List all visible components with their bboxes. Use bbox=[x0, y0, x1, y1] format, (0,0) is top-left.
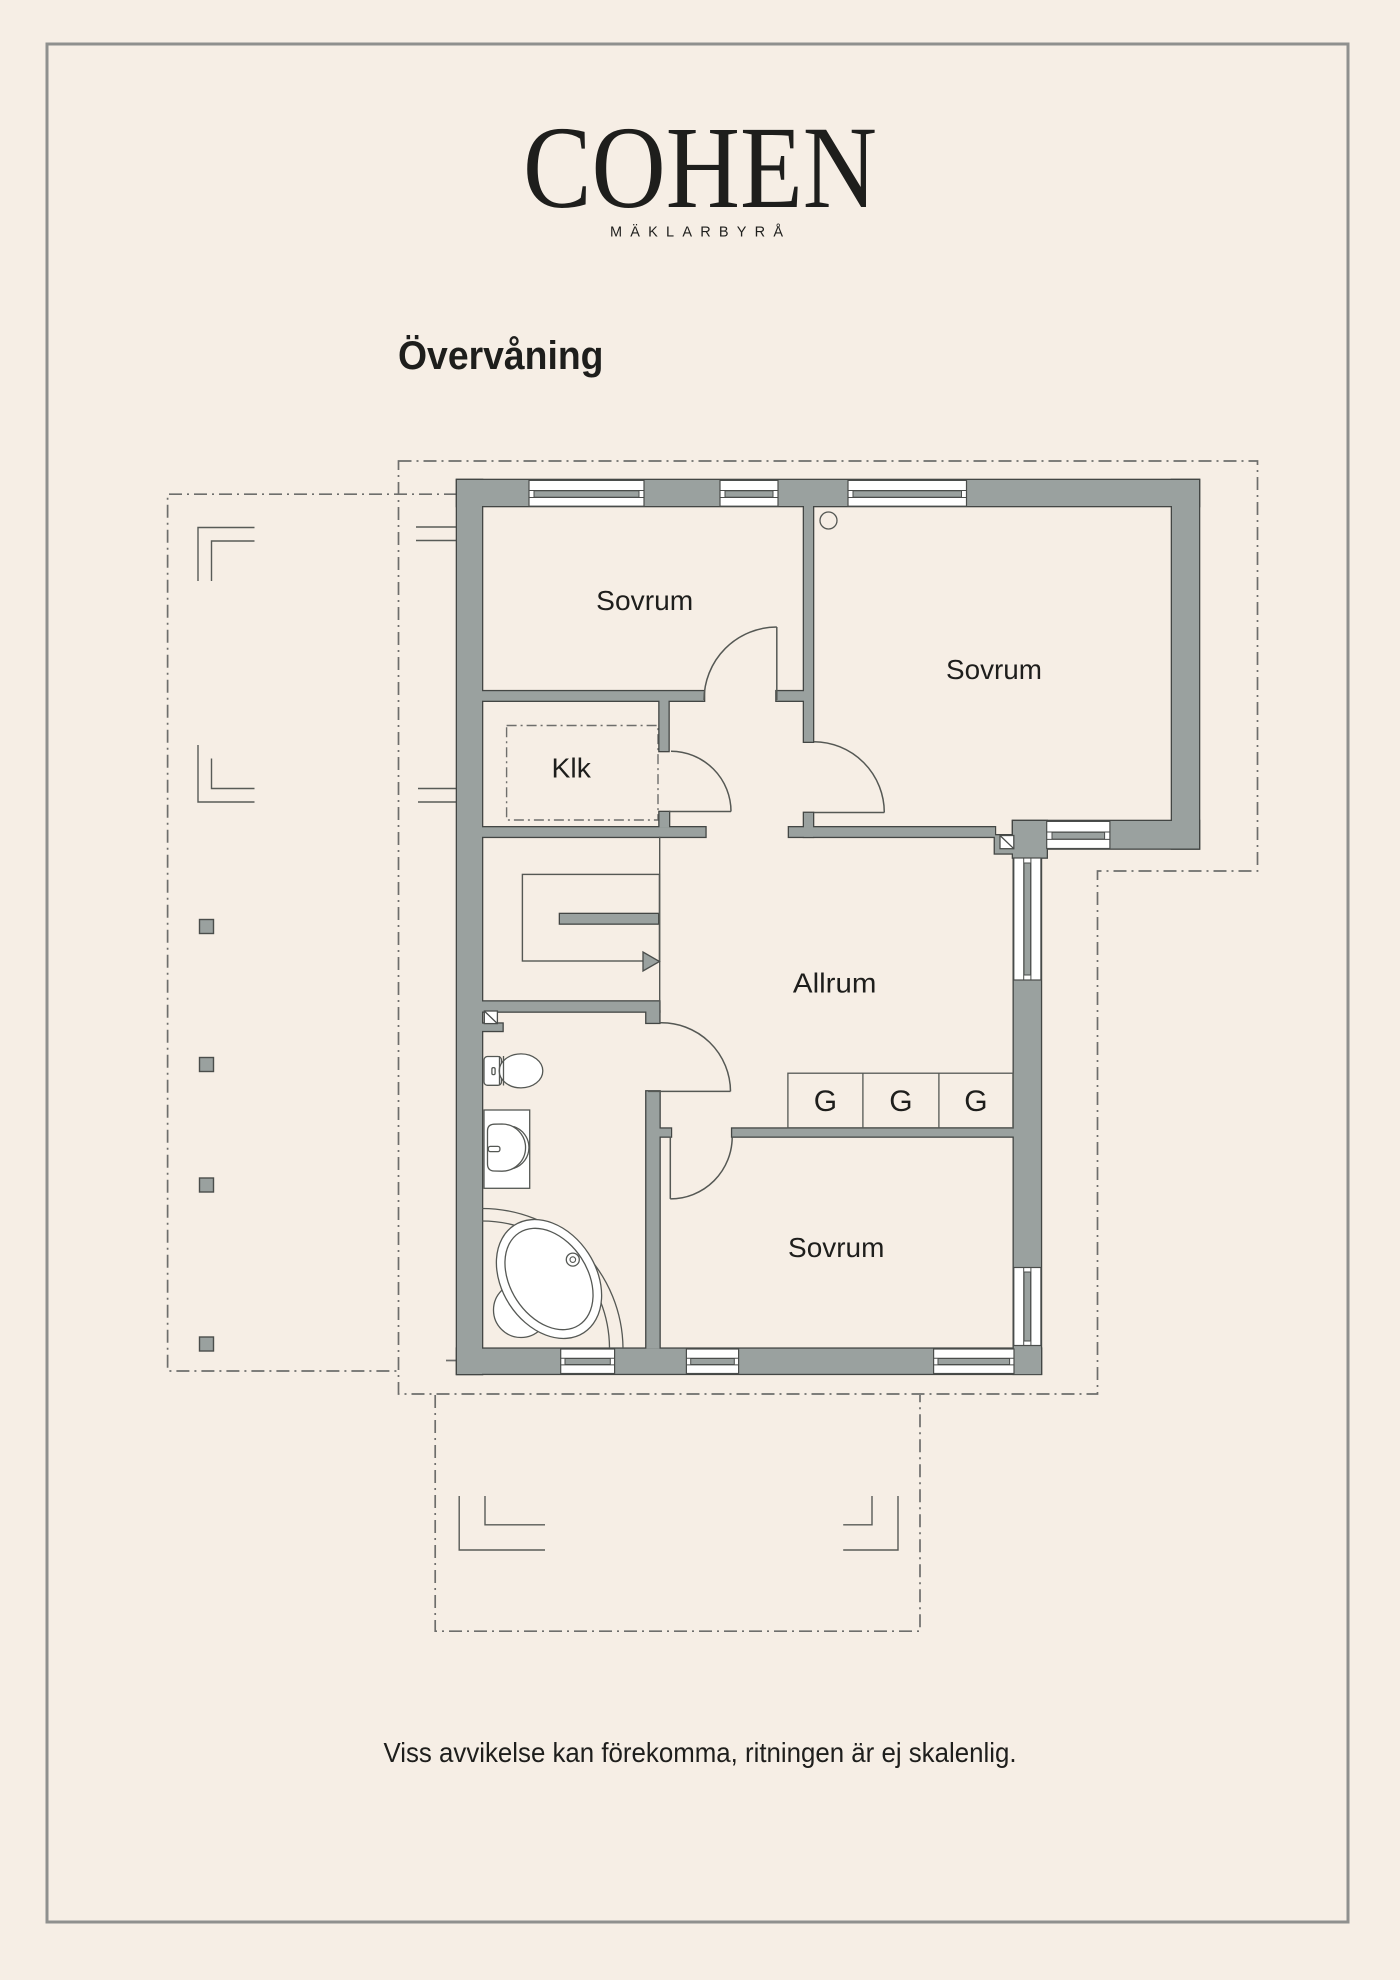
svg-text:COHEN: COHEN bbox=[523, 102, 877, 233]
svg-text:Allrum: Allrum bbox=[793, 968, 877, 999]
svg-text:Övervåning: Övervåning bbox=[398, 333, 604, 378]
svg-text:G: G bbox=[964, 1085, 987, 1118]
svg-text:Klk: Klk bbox=[552, 753, 592, 784]
svg-text:Sovrum: Sovrum bbox=[946, 654, 1042, 685]
svg-text:Viss avvikelse kan förekomma,: Viss avvikelse kan förekomma, ritningen … bbox=[384, 1737, 1017, 1768]
svg-text:MÄKLARBYRÅ: MÄKLARBYRÅ bbox=[610, 224, 790, 241]
svg-text:Sovrum: Sovrum bbox=[596, 585, 693, 616]
svg-text:Sovrum: Sovrum bbox=[788, 1232, 884, 1263]
svg-text:G: G bbox=[814, 1085, 837, 1118]
svg-text:G: G bbox=[889, 1085, 912, 1118]
